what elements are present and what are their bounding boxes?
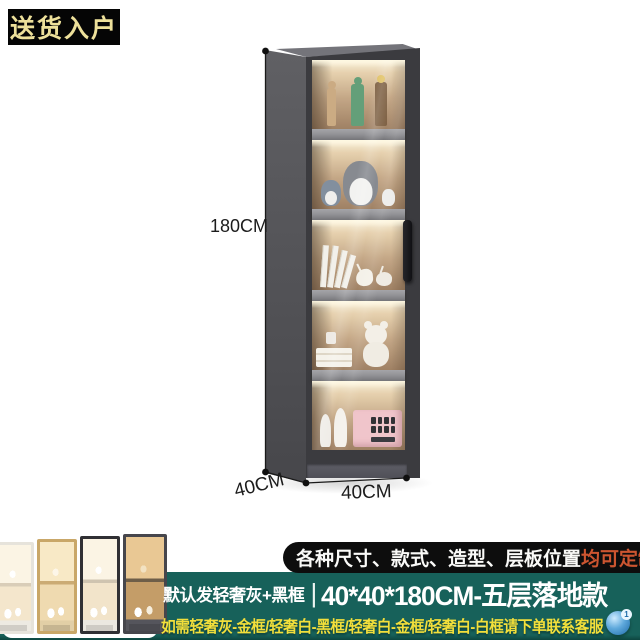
door-handle: [403, 220, 412, 282]
led-glow: [312, 381, 405, 388]
figure-ornament: [351, 84, 364, 126]
shelf-compartment-anime-figures: [312, 60, 405, 129]
pink-storage-box: [353, 410, 402, 447]
figure-ornament: [327, 88, 336, 126]
plush-toy: [382, 189, 395, 206]
book-stack: [316, 348, 352, 367]
shelf-board: [312, 370, 405, 381]
spec-line: 默认发轻奢灰+黑框 | 40*40*180CM-五层落地款: [163, 577, 640, 609]
shelf-board: [312, 209, 405, 220]
default-color-note: 默认发轻奢灰+黑框: [163, 581, 304, 606]
cabinet-plinth: [307, 463, 407, 478]
deer-ornament: [355, 268, 374, 287]
shelf-board: [312, 129, 405, 140]
mannequin-head: [334, 408, 347, 447]
teddy-bear: [361, 325, 391, 367]
variant-thumbnail-gold-frame: [37, 539, 77, 634]
product-image: 送货入户: [0, 0, 640, 640]
service-note-text: 如需轻奢灰-金框/轻奢白-黑框/轻奢白-金框/轻奢白-白框请下单联系客服: [161, 613, 603, 637]
depth-dimension-label: 40CM: [232, 469, 287, 503]
service-line: 如需轻奢灰-金框/轻奢白-黑框/轻奢白-金框/轻奢白-白框请下单联系客服: [161, 613, 631, 637]
led-glow: [312, 301, 405, 308]
notification-badge: 1: [621, 609, 632, 620]
mannequin-head: [320, 414, 331, 447]
customer-service-icon: 1: [606, 611, 630, 635]
plush-toy: [343, 161, 378, 206]
color-variant-panel: [2, 529, 158, 638]
customize-badge-text: 各种尺寸、款式、造型、层板位置: [296, 544, 581, 571]
width-dimension-label: 40CM: [341, 481, 392, 505]
variant-thumbnail-gray-cabinet: [123, 534, 167, 634]
height-dimension-label: 180CM: [210, 216, 268, 237]
shelf-compartment-teddy-bear: [312, 301, 405, 370]
delivery-badge-label: 送货入户: [10, 9, 118, 45]
customize-badge-highlight: 均可定制: [581, 544, 640, 571]
plush-toy: [321, 180, 341, 206]
customize-badge: 各种尺寸、款式、造型、层板位置均可定制: [283, 542, 640, 573]
variant-thumbnail-white-frame: [0, 542, 34, 634]
variant-thumbnail-black-frame: [80, 536, 120, 634]
led-glow: [312, 140, 405, 147]
shelf-board: [312, 290, 405, 301]
cabinet-front: [306, 48, 420, 478]
shelf-compartment-pink-box: [312, 381, 405, 450]
shelf-compartment-books-deer: [312, 220, 405, 289]
product-spec-title: 40*40*180CM-五层落地款: [321, 574, 607, 613]
delivery-badge: 送货入户: [8, 9, 120, 45]
door-frame-bottom: [306, 450, 420, 464]
deer-ornament: [376, 271, 393, 286]
pen-cup: [326, 332, 336, 344]
shelf-compartment-plush-toys: [312, 140, 405, 209]
spec-divider: |: [310, 578, 317, 609]
figure-ornament: [375, 82, 387, 126]
leaning-books: [318, 243, 348, 287]
led-glow: [312, 220, 405, 227]
led-glow: [312, 60, 405, 67]
cabinet-interior: [312, 60, 405, 450]
cabinet-side-panel: [265, 50, 306, 483]
